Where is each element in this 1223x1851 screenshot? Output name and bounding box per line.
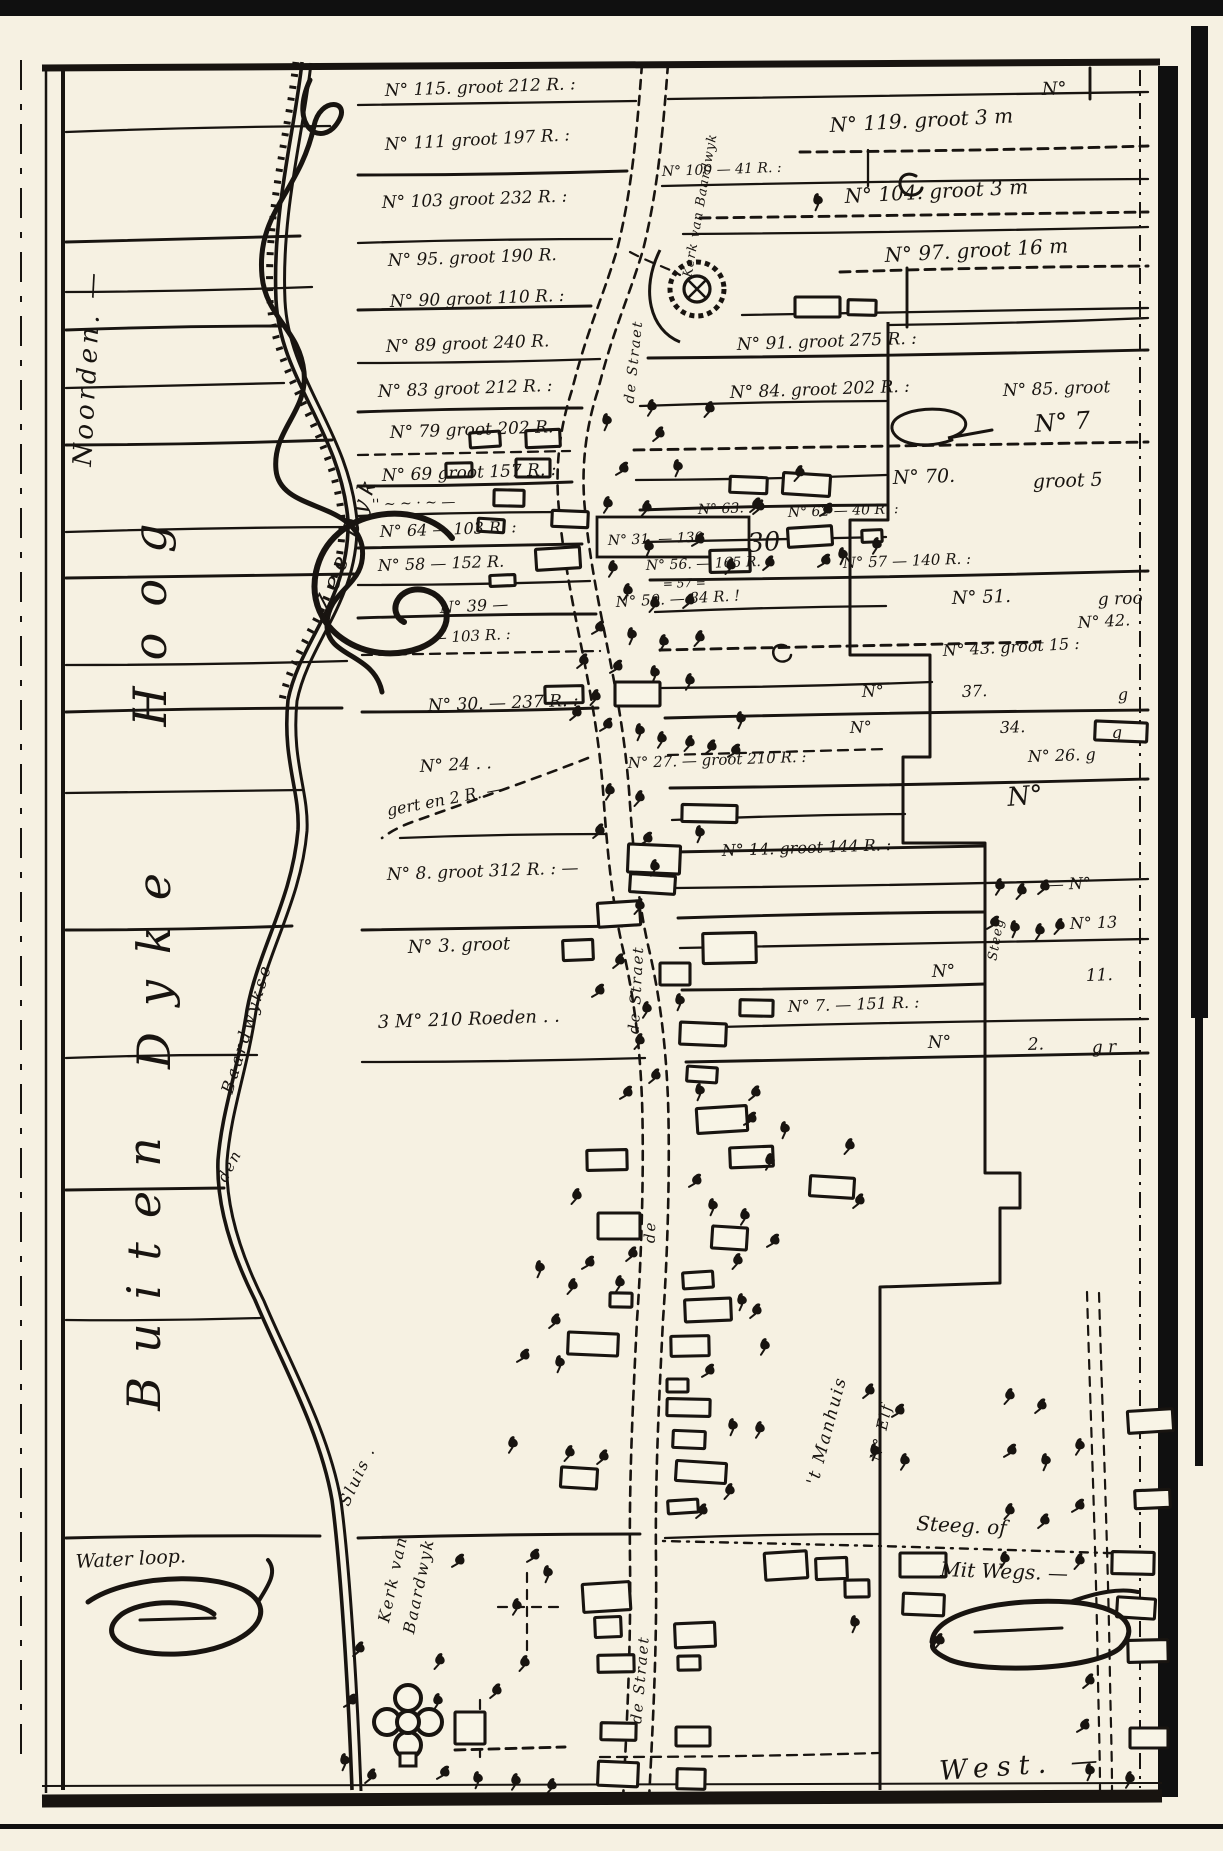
house [682,804,737,822]
scan-edge-band [0,1824,1223,1829]
map-label: N° [860,681,884,701]
house [675,1460,726,1483]
house [1128,1640,1168,1663]
map-label: N° 42. [1076,610,1130,632]
map-label: groot 5 [1032,469,1103,493]
house [568,1332,619,1356]
house [703,932,757,963]
house [1112,1552,1154,1575]
map-label: 30 [746,527,781,559]
map-label: N° 7 [1032,406,1091,438]
scan-edge-band [1195,1018,1203,1466]
map-label: Hoog [123,498,177,728]
house [629,874,675,895]
house [676,1727,710,1746]
house [1127,1409,1173,1434]
map-label: g r [1091,1037,1117,1058]
map-label: N° 24 . . [418,753,492,777]
house [677,1769,705,1790]
map-label: N° 31. — 130 [607,530,704,549]
house [687,1066,718,1083]
house [563,939,594,960]
scan-edge-band [0,0,1223,16]
house [730,476,768,494]
house [787,526,832,548]
house [903,1593,945,1616]
map-label: — N° [1047,874,1091,894]
map-label: 34. [999,717,1025,737]
map-label: N° 70. [891,465,955,489]
house [615,682,660,706]
map-label: N° 63. [697,500,744,518]
house [595,1616,622,1637]
house [816,1557,848,1579]
house [598,1655,634,1673]
house [535,547,580,571]
map-label: 11. [1085,965,1113,986]
church-lobe [395,1685,421,1711]
house [667,1379,688,1392]
map-label: 2. [1026,1034,1044,1055]
house [809,1176,854,1199]
house [455,1712,485,1744]
house [582,1582,631,1613]
house [782,473,830,497]
frame-right-band [1158,66,1178,1797]
map-label: g [1117,685,1128,704]
map-label: N° 51. [950,586,1011,609]
house [900,1553,946,1577]
house [587,1150,627,1171]
house [668,1499,699,1514]
map-label: N° [1040,78,1066,100]
house [696,1105,747,1133]
house [494,490,524,507]
house [1130,1728,1168,1748]
house [598,1213,640,1239]
map-label: N° [926,1032,951,1053]
scan-edge-band [1191,26,1208,1018]
map-label: N° 85. groot [1001,377,1110,401]
house [552,510,589,527]
map-label: N° 13 [1068,912,1117,933]
house [680,1022,727,1046]
map-label: N° 26. g [1026,745,1095,766]
house [490,574,515,586]
map-label: '' ~ ~ · ~ — [372,494,456,513]
map-label: de [641,1220,660,1243]
frame-line [42,1796,1162,1801]
map-label: 37. [961,681,987,701]
house [601,1723,636,1741]
flourish [140,1618,215,1620]
house [683,1271,714,1289]
house [660,963,690,985]
house [795,297,840,317]
house [848,300,876,316]
house [1135,1489,1171,1508]
map-label: N° [930,961,955,982]
house [711,1226,747,1250]
church-center [397,1711,419,1733]
map-label: N° 3. groot [406,933,511,958]
map-label: Mit Wegs. — [939,1557,1069,1585]
house [678,1656,700,1670]
map-label: Dyke [127,847,181,1070]
house [675,1622,716,1648]
house [673,1430,706,1448]
house [671,1336,709,1357]
church-base [400,1753,416,1766]
map-label: Buiten [117,1113,171,1411]
scanned-map-page: N° 115. groot 212 R. :N° 111 groot 197 R… [0,0,1223,1851]
house [667,1399,710,1417]
map-label: N° [1005,780,1044,813]
house [740,1000,773,1017]
historical-map-canvas: N° 115. groot 212 R. :N° 111 groot 197 R… [0,0,1223,1851]
map-label: Steeg. of [916,1511,1011,1540]
map-label: g [1111,723,1122,742]
house [845,1580,869,1597]
house [610,1293,632,1307]
house [685,1298,732,1322]
house [598,1761,639,1787]
map-label: N° 39 — [438,594,508,617]
house [764,1551,808,1581]
map-label: g roo [1097,588,1143,610]
house [560,1467,597,1489]
map-label: N° [848,717,872,737]
